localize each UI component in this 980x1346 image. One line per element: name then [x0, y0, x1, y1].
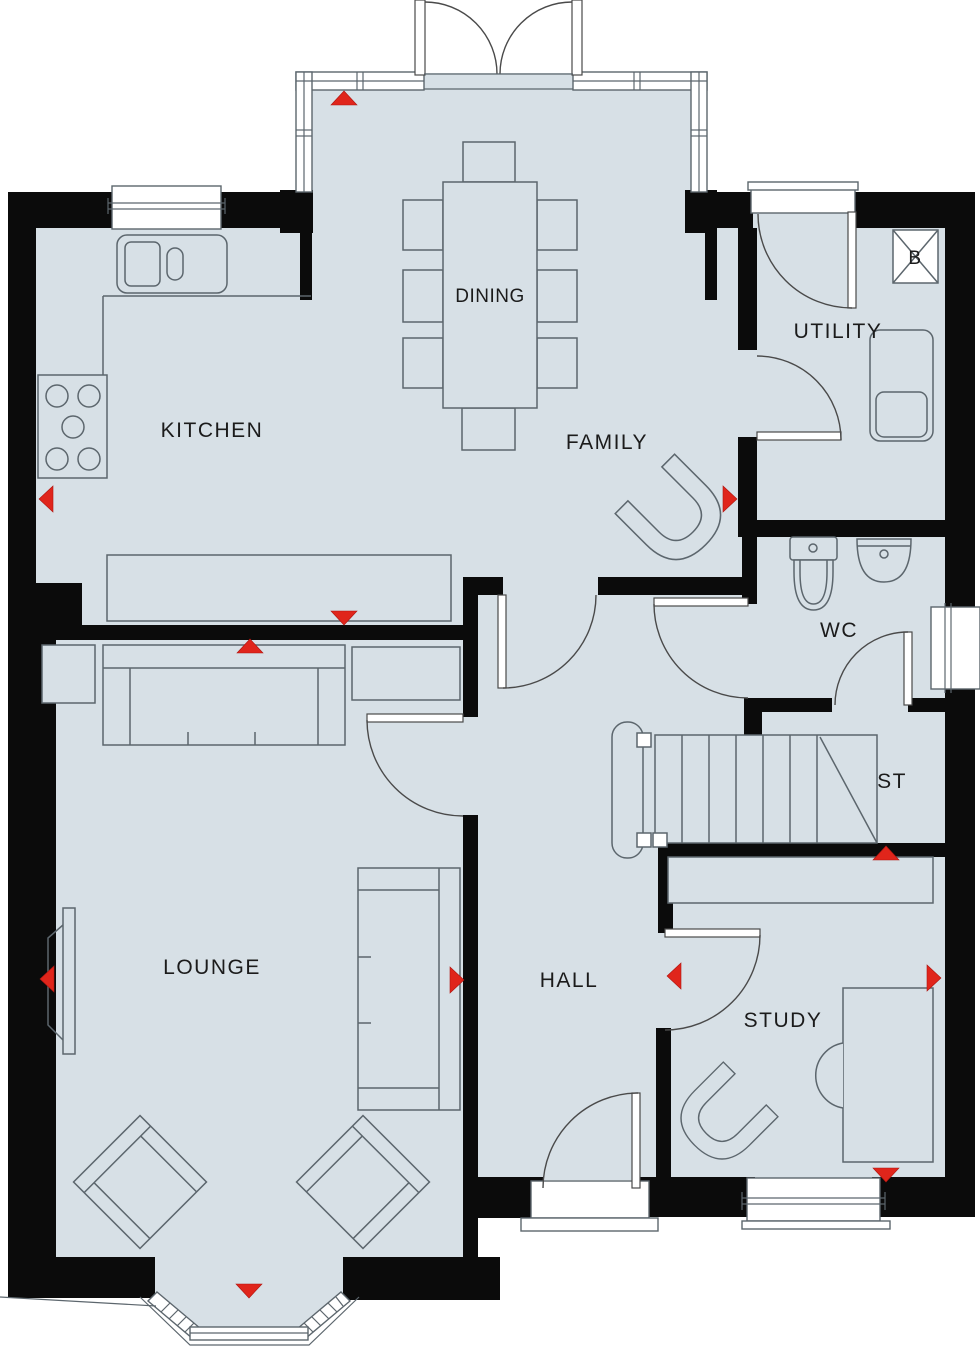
room-label-wc: WC — [820, 619, 858, 642]
toilet-cistern — [790, 537, 837, 560]
side-table — [352, 647, 460, 700]
newel-post — [637, 833, 651, 847]
newel-post — [653, 833, 667, 847]
sofa-top — [103, 645, 345, 745]
room-label-kitchen: KITCHEN — [161, 419, 264, 442]
kitchen-window — [108, 186, 225, 229]
floor-plan-svg: KITCHEN DINING FAMILY UTILITY WC ST LOUN… — [0, 0, 980, 1346]
study-window — [742, 1178, 890, 1229]
floor-plan: KITCHEN DINING FAMILY UTILITY WC ST LOUN… — [0, 0, 980, 1346]
newel-post — [637, 733, 651, 747]
label-boiler: B — [908, 248, 921, 269]
room-label-utility: UTILITY — [794, 320, 883, 343]
room-label-family: FAMILY — [566, 431, 648, 454]
study-shelf — [668, 857, 933, 903]
room-label-hall: HALL — [540, 969, 599, 992]
kitchen-worktop — [107, 555, 451, 621]
room-label-lounge: LOUNGE — [163, 956, 261, 979]
study-desk — [843, 988, 933, 1162]
side-table — [42, 645, 95, 703]
room-label-dining: DINING — [455, 286, 525, 307]
wc-window — [931, 603, 980, 693]
sofa-right — [358, 868, 460, 1110]
room-label-store: ST — [877, 770, 907, 793]
room-label-study: STUDY — [744, 1009, 823, 1032]
